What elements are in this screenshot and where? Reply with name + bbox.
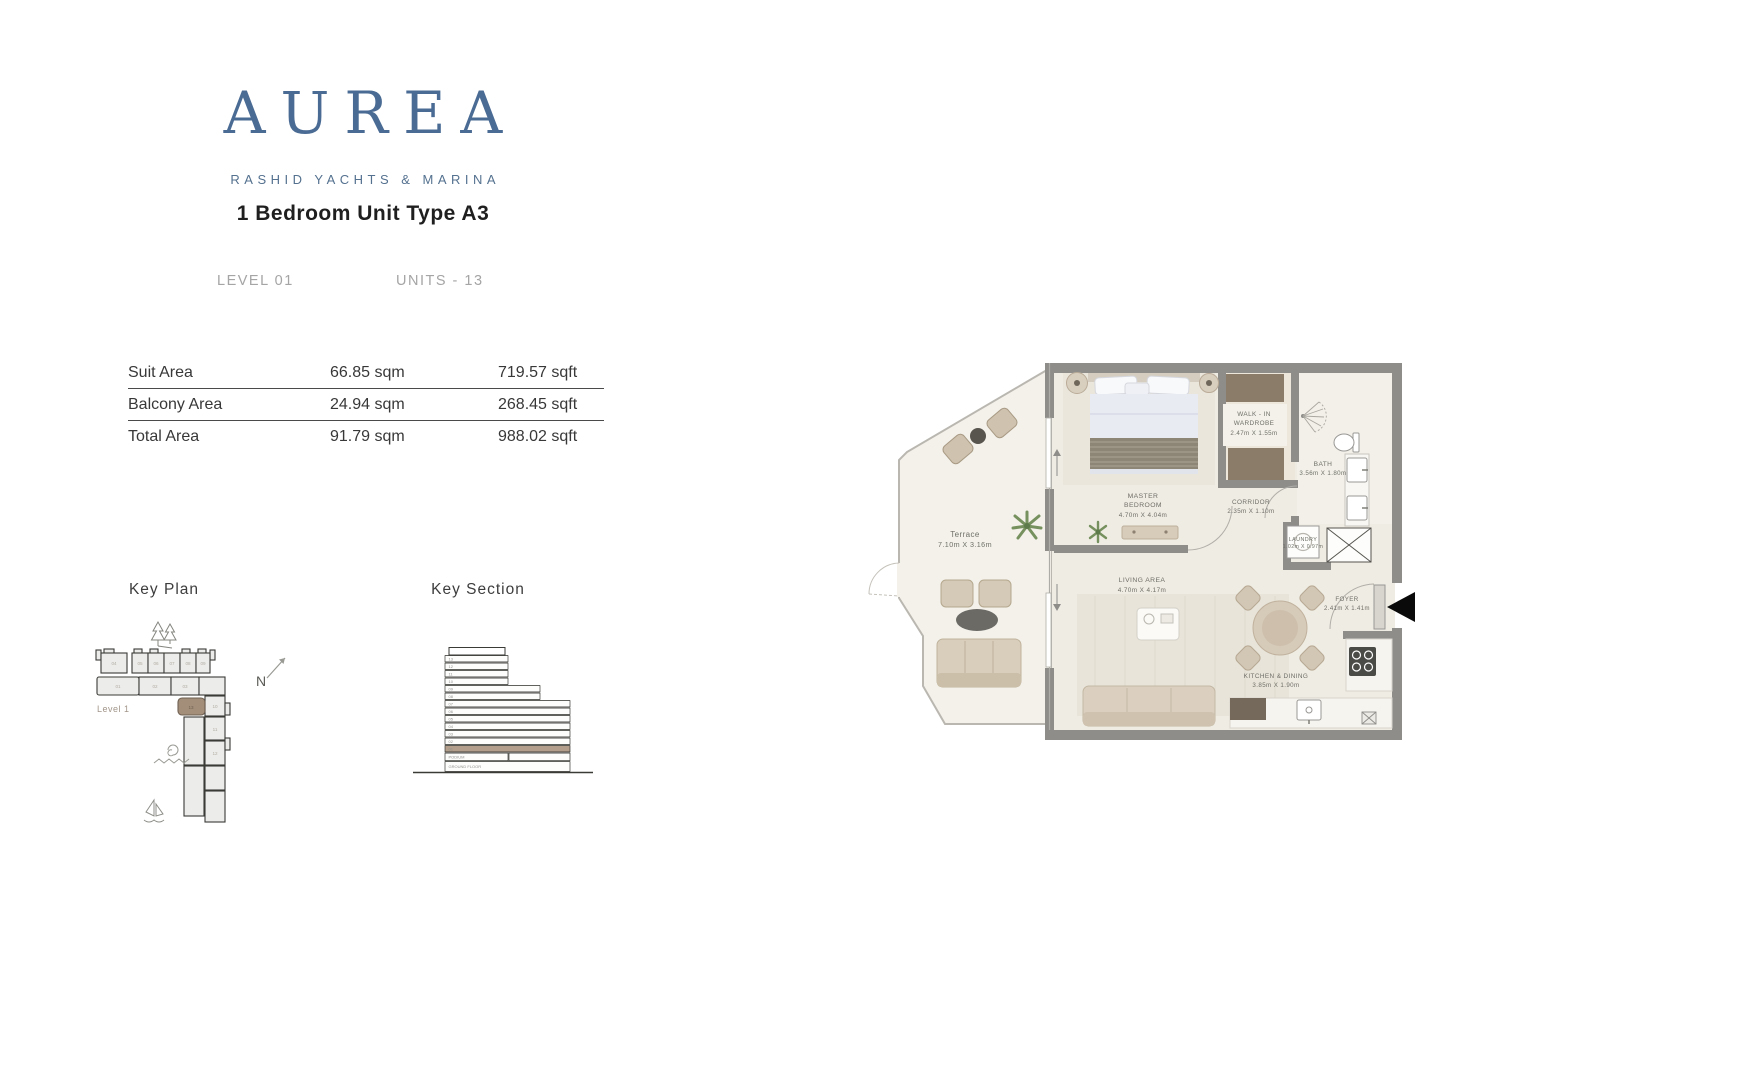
page-title: 1 Bedroom Unit Type A3 — [103, 202, 623, 226]
kitchen-sink-icon — [1297, 700, 1321, 724]
keyplan-building — [96, 649, 230, 822]
toilet-icon — [1334, 433, 1359, 452]
room-label-foyer: FOYER — [1335, 596, 1358, 603]
brand-logo: AUREA — [103, 84, 623, 142]
svg-text:06: 06 — [449, 709, 454, 714]
room-label-laundry: LAUNDRY — [1289, 537, 1317, 543]
area-table: Suit Area 66.85 sqm 719.57 sqft Balcony … — [128, 357, 604, 453]
north-label: N — [256, 673, 266, 689]
shaft-box — [1327, 528, 1371, 562]
svg-text:2.47m X 1.55m: 2.47m X 1.55m — [1230, 430, 1277, 437]
service-hatch — [1362, 712, 1376, 724]
svg-text:03: 03 — [182, 684, 188, 689]
svg-text:3.85m X 1.90m: 3.85m X 1.90m — [1252, 682, 1299, 689]
table-row: Balcony Area 24.94 sqm 268.45 sqft — [128, 389, 604, 421]
room-label-living-area: LIVING AREA — [1119, 577, 1166, 584]
svg-text:04: 04 — [449, 724, 454, 729]
table-row: Suit Area 66.85 sqm 719.57 sqft — [128, 357, 604, 389]
svg-text:08: 08 — [449, 694, 454, 699]
row-label: Suit Area — [128, 364, 330, 382]
svg-text:2.41m X 1.41m: 2.41m X 1.41m — [1324, 606, 1370, 612]
sailboat-icon — [144, 800, 164, 822]
level-label: LEVEL 01 — [217, 273, 294, 289]
section-building — [413, 648, 593, 773]
svg-text:4.70m X 4.17m: 4.70m X 4.17m — [1118, 587, 1167, 594]
svg-text:PODIUM: PODIUM — [449, 755, 465, 760]
svg-text:WARDROBE: WARDROBE — [1234, 420, 1275, 427]
svg-text:10: 10 — [212, 704, 218, 709]
svg-text:02: 02 — [152, 684, 158, 689]
svg-text:13: 13 — [449, 657, 454, 662]
trees-icon — [152, 622, 177, 648]
svg-text:07: 07 — [449, 702, 454, 707]
floorplan: Terrace 7.10m X 3.16m MASTER BEDROOM 4.7… — [855, 356, 1415, 750]
key-section-diagram: 13 12 11 10 09 08 07 06 05 04 03 02 01 P… — [368, 638, 613, 796]
room-label-corridor: CORRIDOR — [1232, 499, 1270, 506]
svg-text:2.35m X 1.10m: 2.35m X 1.10m — [1227, 508, 1274, 515]
svg-text:1.02m X 0.97m: 1.02m X 0.97m — [1283, 544, 1323, 550]
wardrobe-closets — [1223, 374, 1287, 480]
highlighted-unit-number: 13 — [188, 705, 194, 710]
row-sqft: 988.02 sqft — [498, 428, 604, 446]
svg-text:01: 01 — [449, 747, 454, 752]
room-label-wardrobe: WALK - IN — [1237, 411, 1271, 418]
svg-text:03: 03 — [449, 732, 454, 737]
table-row: Total Area 91.79 sqm 988.02 sqft — [128, 421, 604, 453]
svg-text:05: 05 — [137, 661, 143, 666]
living-sofa — [1083, 686, 1215, 726]
room-label-kitchen-dining: KITCHEN & DINING — [1244, 673, 1309, 680]
svg-text:04: 04 — [111, 661, 117, 666]
svg-text:07: 07 — [169, 661, 175, 666]
room-label-terrace: Terrace — [950, 530, 980, 539]
row-sqft: 719.57 sqft — [498, 364, 604, 382]
vanity-sinks — [1345, 454, 1369, 526]
svg-text:02: 02 — [449, 739, 454, 744]
svg-text:BEDROOM: BEDROOM — [1124, 502, 1162, 509]
bedroom-console — [1122, 526, 1178, 539]
row-sqm: 66.85 sqm — [330, 364, 498, 382]
svg-text:7.10m X 3.16m: 7.10m X 3.16m — [938, 540, 992, 549]
keyplan-level-label: Level 1 — [97, 704, 130, 714]
row-label: Total Area — [128, 428, 330, 446]
row-label: Balcony Area — [128, 396, 330, 414]
svg-text:10: 10 — [449, 679, 454, 684]
row-sqft: 268.45 sqft — [498, 396, 604, 414]
svg-text:09: 09 — [200, 661, 206, 666]
key-section-title: Key Section — [395, 581, 561, 599]
svg-text:4.70m X 4.04m: 4.70m X 4.04m — [1119, 512, 1168, 519]
svg-text:09: 09 — [449, 687, 454, 692]
room-label-master-bedroom: MASTER — [1128, 493, 1159, 500]
brand-block: AUREA RASHID YACHTS & MARINA 1 Bedroom U… — [103, 84, 623, 226]
svg-text:3.56m X 1.80m: 3.56m X 1.80m — [1299, 470, 1346, 477]
svg-text:GROUND FLOOR: GROUND FLOOR — [449, 764, 482, 769]
north-arrow-icon: N — [256, 658, 285, 689]
svg-text:11: 11 — [213, 727, 218, 732]
svg-text:05: 05 — [449, 717, 454, 722]
svg-text:06: 06 — [153, 661, 159, 666]
key-plan-title: Key Plan — [85, 581, 243, 599]
row-sqm: 24.94 sqm — [330, 396, 498, 414]
room-label-bath: BATH — [1314, 461, 1333, 468]
brand-tagline: RASHID YACHTS & MARINA — [103, 172, 623, 187]
coffee-table — [1137, 608, 1179, 640]
svg-text:08: 08 — [185, 661, 191, 666]
key-plan-diagram: N 04 05 06 — [84, 608, 296, 836]
units-label: UNITS - 13 — [396, 273, 484, 289]
svg-text:12: 12 — [212, 751, 218, 756]
svg-text:12: 12 — [449, 664, 454, 669]
stove-icon — [1349, 647, 1376, 676]
entrance-door — [1374, 585, 1385, 629]
svg-text:01: 01 — [115, 684, 121, 689]
row-sqm: 91.79 sqm — [330, 428, 498, 446]
